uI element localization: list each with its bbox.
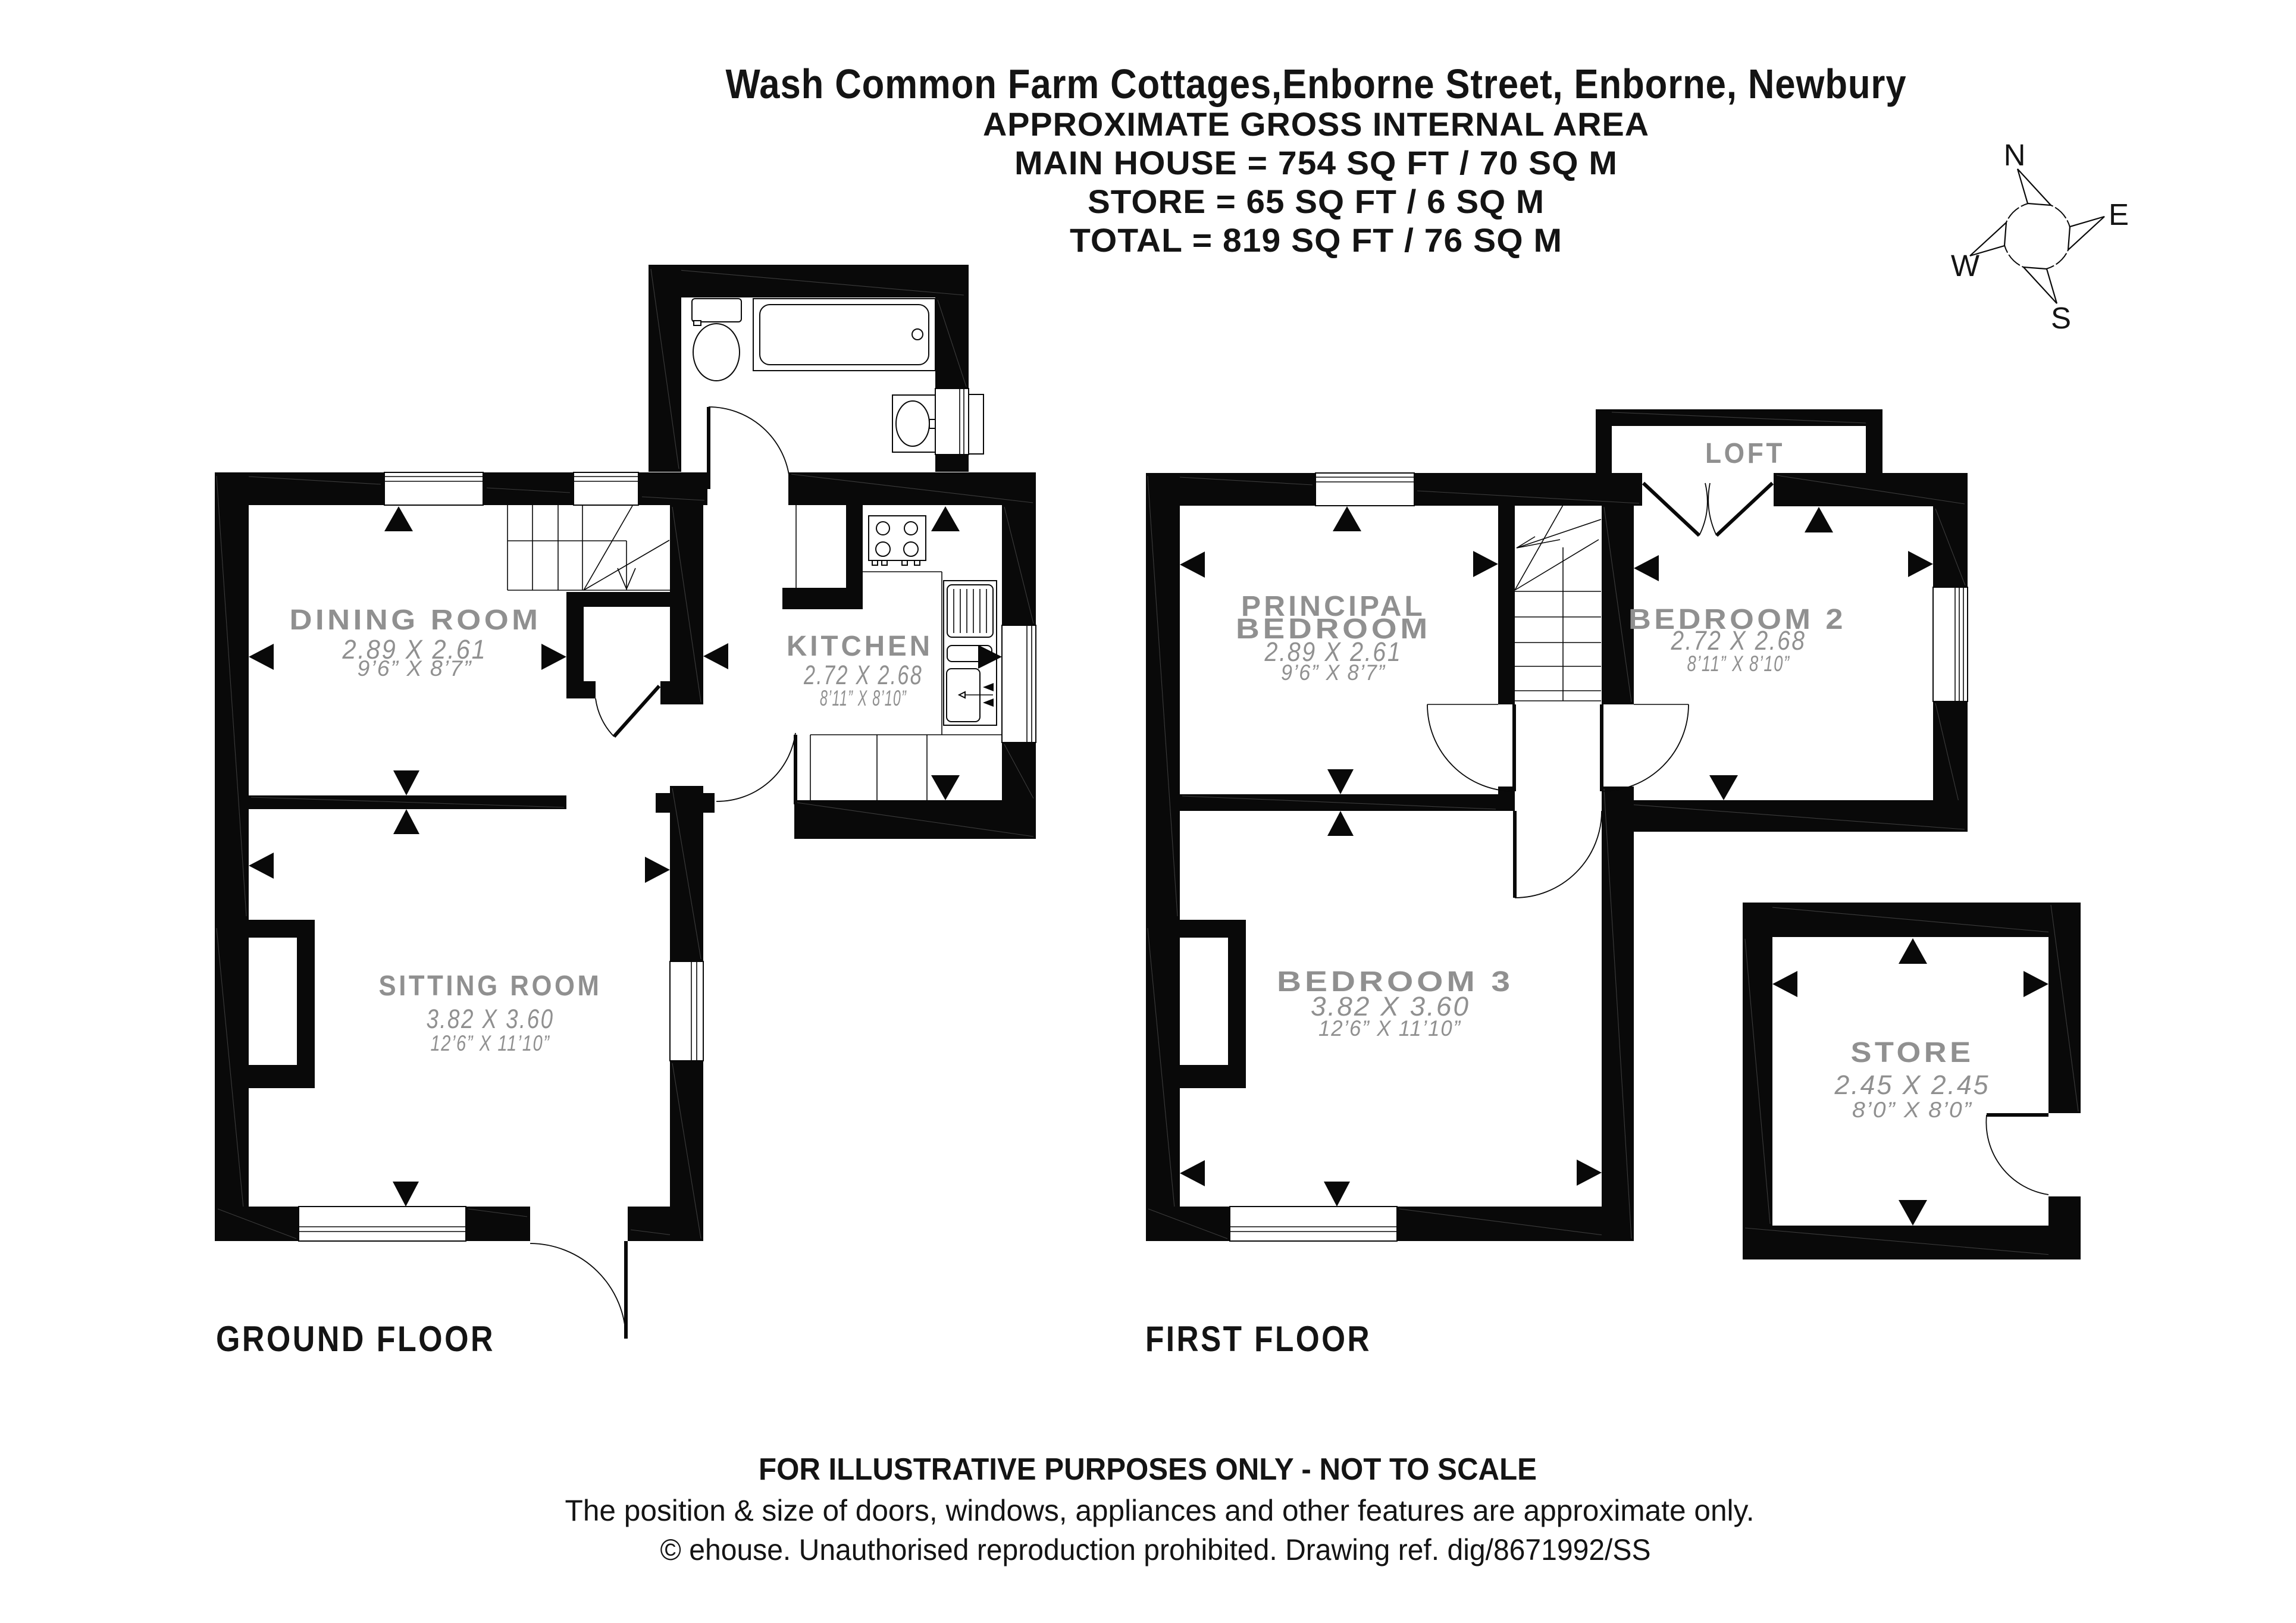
svg-text:N: N xyxy=(2004,138,2026,172)
svg-text:FIRST FLOOR: FIRST FLOOR xyxy=(1145,1319,1371,1359)
svg-text:8’11” X 8’10”: 8’11” X 8’10” xyxy=(1687,651,1790,676)
svg-text:2.45 X 2.45: 2.45 X 2.45 xyxy=(1834,1070,1990,1100)
svg-text:DINING ROOM: DINING ROOM xyxy=(290,604,541,636)
svg-text:E: E xyxy=(2109,198,2129,231)
svg-text:8’11” X 8’10”: 8’11” X 8’10” xyxy=(820,686,907,710)
svg-text:GROUND FLOOR: GROUND FLOOR xyxy=(216,1319,495,1359)
svg-text:12’6” X 11’10”: 12’6” X 11’10” xyxy=(431,1031,550,1055)
svg-text:TOTAL = 819 SQ FT / 76 SQ M: TOTAL = 819 SQ FT / 76 SQ M xyxy=(1070,221,1562,259)
svg-text:12’6” X 11’10”: 12’6” X 11’10” xyxy=(1318,1016,1461,1041)
svg-text:The position & size of doors,: The position & size of doors, windows, a… xyxy=(565,1494,1755,1527)
svg-text:© ehouse. Unauthorised reprodu: © ehouse. Unauthorised reproduction proh… xyxy=(660,1533,1651,1566)
svg-text:SITTING ROOM: SITTING ROOM xyxy=(379,970,602,1002)
svg-text:S: S xyxy=(2051,301,2071,335)
svg-text:W: W xyxy=(1951,249,1979,283)
svg-text:8’0” X 8’0”: 8’0” X 8’0” xyxy=(1852,1098,1972,1122)
svg-text:MAIN HOUSE = 754 SQ FT / 70 SQ: MAIN HOUSE = 754 SQ FT / 70 SQ M xyxy=(1014,144,1618,181)
svg-text:STORE: STORE xyxy=(1851,1037,1974,1069)
svg-text:APPROXIMATE GROSS INTERNAL ARE: APPROXIMATE GROSS INTERNAL AREA xyxy=(983,105,1649,143)
svg-text:Wash Common Farm Cottages,Enbo: Wash Common Farm Cottages,Enborne Street… xyxy=(726,61,1907,107)
svg-text:9’6” X 8’7”: 9’6” X 8’7” xyxy=(1281,660,1386,685)
svg-text:STORE = 65 SQ FT / 6 SQ M: STORE = 65 SQ FT / 6 SQ M xyxy=(1088,183,1545,220)
svg-text:3.82 X 3.60: 3.82 X 3.60 xyxy=(427,1004,555,1034)
svg-text:KITCHEN: KITCHEN xyxy=(787,631,933,662)
svg-text:FOR ILLUSTRATIVE PURPOSES ONLY: FOR ILLUSTRATIVE PURPOSES ONLY - NOT TO … xyxy=(759,1452,1537,1487)
svg-text:9’6” X 8’7”: 9’6” X 8’7” xyxy=(358,656,472,681)
svg-text:LOFT: LOFT xyxy=(1705,438,1785,469)
